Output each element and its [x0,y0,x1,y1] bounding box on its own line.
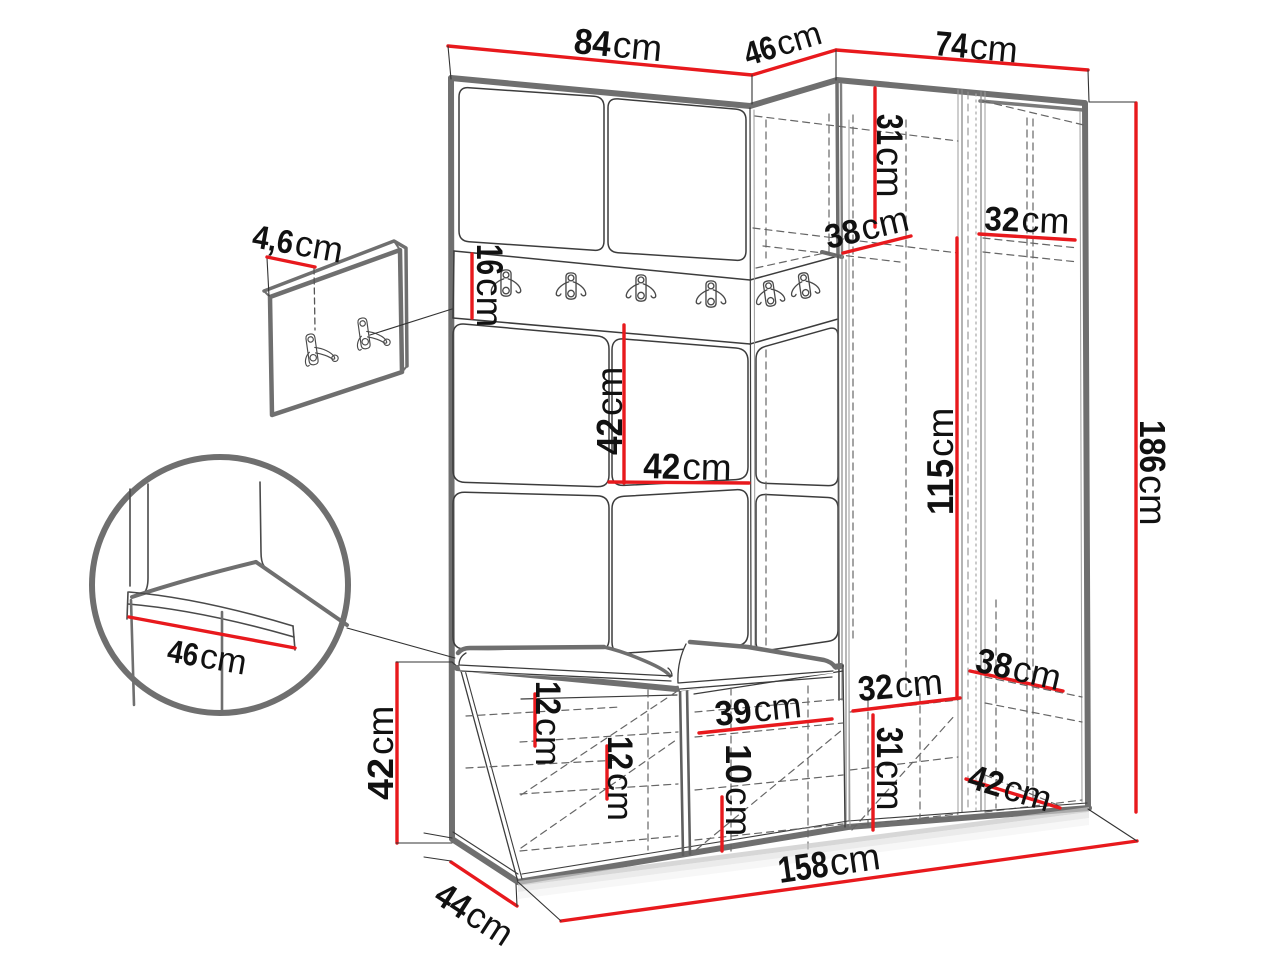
svg-text:39: 39 [713,691,754,734]
svg-text:46: 46 [165,632,202,673]
svg-text:cm: cm [292,222,346,271]
svg-text:cm: cm [868,147,910,198]
svg-text:cm: cm [589,367,630,416]
svg-text:12: 12 [600,736,639,770]
svg-text:16: 16 [469,244,510,275]
svg-text:31: 31 [869,727,910,758]
svg-text:cm: cm [469,278,510,327]
svg-text:32: 32 [856,667,894,709]
svg-text:10: 10 [718,744,759,784]
svg-text:cm: cm [611,24,664,69]
svg-text:42: 42 [643,445,681,487]
svg-text:cm: cm [968,25,1020,70]
svg-text:cm: cm [528,718,569,766]
svg-text:cm: cm [827,836,883,885]
svg-text:cm: cm [751,684,803,730]
svg-text:cm: cm [920,408,961,457]
svg-text:cm: cm [868,760,910,811]
svg-text:42: 42 [589,418,630,455]
svg-text:31: 31 [869,114,910,145]
svg-text:cm: cm [600,773,641,821]
svg-text:cm: cm [1131,475,1173,526]
svg-text:158: 158 [775,843,830,891]
svg-text:cm: cm [682,446,732,488]
svg-text:74: 74 [933,24,970,66]
svg-text:186: 186 [1132,420,1173,473]
svg-text:42: 42 [360,758,401,800]
svg-text:115: 115 [920,459,961,515]
svg-text:cm: cm [197,636,250,683]
svg-text:32: 32 [984,200,1021,239]
svg-text:12: 12 [528,681,567,715]
svg-text:4,6: 4,6 [250,217,297,261]
svg-text:cm: cm [718,787,759,836]
svg-text:cm: cm [360,706,401,755]
svg-text:cm: cm [893,661,944,706]
svg-text:84: 84 [572,20,613,64]
svg-text:cm: cm [1021,199,1071,242]
